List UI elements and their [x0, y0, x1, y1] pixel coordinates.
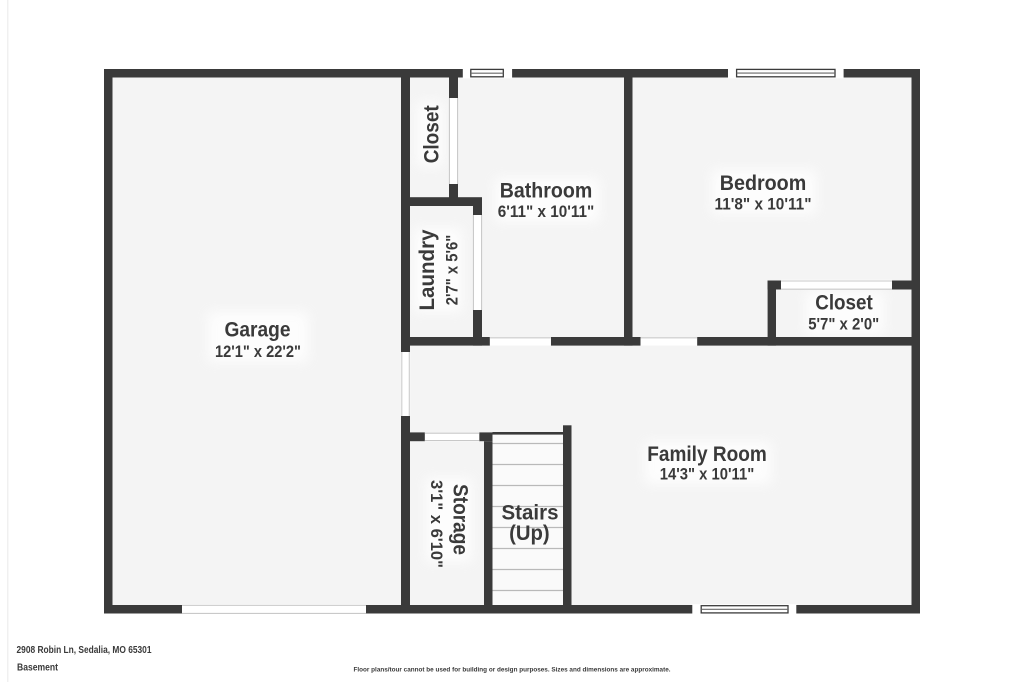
svg-text:2908 Robin Ln, Sedalia, MO 653: 2908 Robin Ln, Sedalia, MO 65301 — [17, 645, 152, 656]
svg-text:2'7" x 5'6": 2'7" x 5'6" — [442, 235, 461, 306]
svg-text:(Up): (Up) — [509, 522, 550, 545]
svg-text:Bathroom: Bathroom — [500, 179, 593, 202]
svg-text:Laundry: Laundry — [416, 229, 439, 310]
svg-text:6'11" x 10'11": 6'11" x 10'11" — [498, 202, 595, 221]
svg-text:Closet: Closet — [420, 105, 443, 163]
svg-text:Garage: Garage — [225, 319, 291, 342]
svg-text:Storage: Storage — [448, 484, 471, 555]
svg-text:14'3" x 10'11": 14'3" x 10'11" — [660, 465, 755, 484]
svg-text:3'1" x 6'10": 3'1" x 6'10" — [427, 480, 446, 568]
svg-text:Family Room: Family Room — [647, 443, 767, 466]
svg-text:Closet: Closet — [815, 292, 873, 315]
svg-text:5'7" x 2'0": 5'7" x 2'0" — [808, 315, 879, 334]
svg-text:11'8" x 10'11": 11'8" x 10'11" — [715, 194, 812, 213]
svg-text:Bedroom: Bedroom — [720, 172, 807, 195]
svg-text:Basement: Basement — [17, 662, 59, 673]
svg-text:Floor plans/tour cannot be use: Floor plans/tour cannot be used for buil… — [354, 666, 671, 673]
svg-text:12'1" x 22'2": 12'1" x 22'2" — [215, 342, 301, 361]
